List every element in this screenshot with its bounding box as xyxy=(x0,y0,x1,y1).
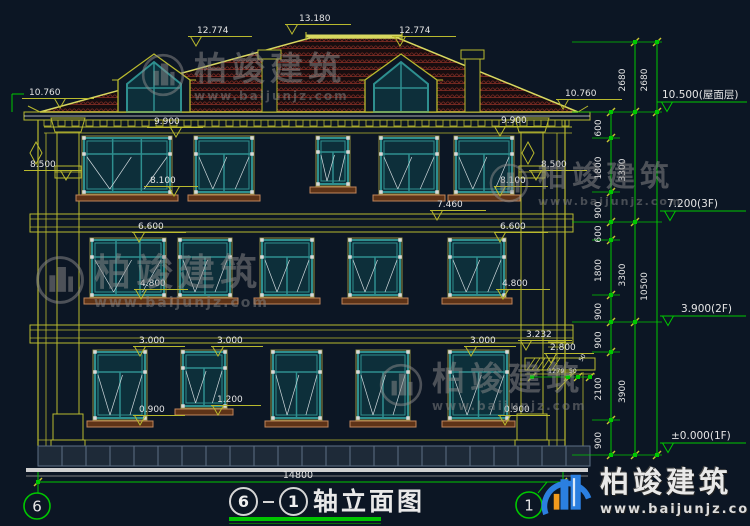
frame-dot xyxy=(311,256,314,259)
chimney-cap xyxy=(258,50,281,59)
frame-dot xyxy=(317,151,320,154)
dim-tick-dot xyxy=(610,137,613,140)
company-logo-icon xyxy=(538,468,592,526)
window-sill xyxy=(310,187,356,193)
frame-dot xyxy=(380,137,383,140)
frame-dot xyxy=(83,137,86,140)
base-stone xyxy=(518,446,542,466)
frame-dot xyxy=(91,294,94,297)
frame-dot xyxy=(272,371,275,374)
dentil xyxy=(72,120,79,126)
base-stone xyxy=(326,446,350,466)
level-annotation: 4.800 xyxy=(140,279,166,289)
frame-dot xyxy=(349,239,352,242)
base-stone xyxy=(374,446,398,466)
frame-dot xyxy=(144,371,147,374)
frame-dot xyxy=(380,153,383,156)
dentil xyxy=(282,120,289,126)
base-stone xyxy=(230,446,254,466)
base-stone xyxy=(566,446,590,466)
frame-dot xyxy=(163,294,166,297)
level-annotation: 8.100 xyxy=(500,176,526,186)
frame-dot xyxy=(83,191,86,194)
base-stone xyxy=(158,446,182,466)
eave-corner xyxy=(28,106,40,112)
dentil xyxy=(366,120,373,126)
frame-dot xyxy=(94,417,97,420)
frame-dot xyxy=(169,153,172,156)
frame-dot xyxy=(506,351,509,354)
company-name: 柏竣建筑 xyxy=(600,468,750,497)
frame-dot xyxy=(449,294,452,297)
level-annotation: 10.760 xyxy=(565,89,597,99)
level-annotation: 0.900 xyxy=(504,405,530,415)
frame-dot xyxy=(94,351,97,354)
frame-dot xyxy=(449,417,452,420)
level-annotation: 10.760 xyxy=(29,88,61,98)
level-annotation: 4.800 xyxy=(502,279,528,289)
frame-dot xyxy=(357,371,360,374)
frame-dot xyxy=(94,371,97,374)
frame-dot xyxy=(407,371,410,374)
dentil xyxy=(380,120,387,126)
dim-value: 3300 xyxy=(618,158,628,181)
level-annotation: 6.600 xyxy=(138,222,164,232)
dim-tick-dot xyxy=(610,111,613,114)
axis-bubble-number: 1 xyxy=(524,497,534,515)
base-stone xyxy=(254,446,278,466)
frame-dot xyxy=(91,256,94,259)
window-sill xyxy=(76,195,178,201)
frame-dot xyxy=(436,153,439,156)
dentil xyxy=(408,120,415,126)
frame-dot xyxy=(449,351,452,354)
dim-value: 900 xyxy=(594,303,604,320)
dentil xyxy=(296,120,303,126)
frame-dot xyxy=(261,294,264,297)
title-axis-bubble-start: 6 xyxy=(229,487,258,516)
frame-dot xyxy=(144,351,147,354)
frame-dot xyxy=(506,371,509,374)
frame-dot xyxy=(349,294,352,297)
elevation-svg: 1279505013.18012.77412.77410.76010.7609.… xyxy=(0,0,750,526)
dim-value: 2100 xyxy=(594,377,604,400)
dentil xyxy=(548,120,555,126)
dim-value: 3300 xyxy=(618,263,628,286)
level-annotation: 9.900 xyxy=(154,117,180,127)
frame-dot xyxy=(399,239,402,242)
frame-dot xyxy=(380,191,383,194)
floor-level-label: 10.500(屋面层) xyxy=(662,89,738,101)
frame-dot xyxy=(399,256,402,259)
dentil xyxy=(240,120,247,126)
cad-elevation-screenshot: 1279505013.18012.77412.77410.76010.7609.… xyxy=(0,0,750,526)
frame-dot xyxy=(179,294,182,297)
pilaster-base xyxy=(53,414,83,440)
frame-dot xyxy=(229,239,232,242)
base-stone xyxy=(86,446,110,466)
level-annotation: 6.600 xyxy=(500,222,526,232)
dim-tick-dot xyxy=(634,454,637,457)
level-annotation: 3.000 xyxy=(470,336,496,346)
small-dim-text: 50 xyxy=(569,368,577,375)
dim-tick-dot xyxy=(610,294,613,297)
dentil xyxy=(198,120,205,126)
dim-tick-dot xyxy=(610,321,613,324)
frame-dot xyxy=(407,417,410,420)
dim-tick-dot xyxy=(577,376,580,379)
dentil xyxy=(226,120,233,126)
company-logo-building-icon xyxy=(538,468,592,522)
frame-dot xyxy=(251,153,254,156)
frame-dot xyxy=(261,256,264,259)
level-annotation: 3.000 xyxy=(139,336,165,346)
frame-dot xyxy=(195,191,198,194)
company-website: www.baijunjz.com xyxy=(600,502,750,517)
eave-corner xyxy=(578,106,588,112)
title-axis-bubble-end: 1 xyxy=(279,487,308,516)
floor-level-label: 7.200(3F) xyxy=(667,198,718,210)
dentil xyxy=(184,120,191,126)
dim-tick-dot xyxy=(656,41,659,44)
company-logo: 柏竣建筑 www.baijunjz.com xyxy=(538,468,750,526)
dentil xyxy=(142,120,149,126)
frame-dot xyxy=(229,294,232,297)
frame-dot xyxy=(357,351,360,354)
window-sill xyxy=(87,421,153,427)
dim-value: 2680 xyxy=(640,68,650,91)
dim-tick-dot xyxy=(531,376,534,379)
base-stone xyxy=(446,446,470,466)
frame-dot xyxy=(399,294,402,297)
dim-value: 2680 xyxy=(618,68,628,91)
frame-dot xyxy=(349,256,352,259)
dentil xyxy=(310,120,317,126)
dim-value: 10500 xyxy=(640,272,650,301)
title-text: 轴立面图 xyxy=(313,489,425,514)
frame-dot xyxy=(224,367,227,370)
dim-tick-dot xyxy=(610,221,613,224)
dentil xyxy=(268,120,275,126)
dentil xyxy=(492,120,499,126)
dim-tick-dot xyxy=(634,221,637,224)
dentil xyxy=(58,120,65,126)
base-stone xyxy=(278,446,302,466)
dentil xyxy=(114,120,121,126)
base-stone xyxy=(206,446,230,466)
level-annotation: 3.000 xyxy=(217,336,243,346)
window-sill xyxy=(350,421,416,427)
dentil xyxy=(436,120,443,126)
axis-bubble-number: 6 xyxy=(32,498,42,516)
title-underline xyxy=(229,517,381,521)
window-sill xyxy=(442,298,512,304)
base-stone xyxy=(542,446,566,466)
dim-value: 1800 xyxy=(594,259,604,282)
canopy-hatch xyxy=(537,358,545,370)
base-stone xyxy=(182,446,206,466)
frame-dot xyxy=(251,191,254,194)
level-annotation: 9.900 xyxy=(501,116,527,126)
base-stone xyxy=(62,446,86,466)
frame-dot xyxy=(511,191,514,194)
pilaster-plinth xyxy=(51,440,85,446)
level-annotation: 13.180 xyxy=(299,14,331,24)
drawing-title: 6 1 轴立面图 xyxy=(229,487,425,516)
canopy-hatch xyxy=(532,358,540,370)
frame-dot xyxy=(319,351,322,354)
frame-dot xyxy=(311,239,314,242)
chimney-cap xyxy=(461,50,484,59)
level-triangle-icon xyxy=(663,316,674,326)
dentil xyxy=(534,120,541,126)
frame-dot xyxy=(272,417,275,420)
dim-value: 900 xyxy=(594,201,604,218)
floor-level-label: 3.900(2F) xyxy=(681,303,732,315)
frame-dot xyxy=(311,294,314,297)
floor-belt xyxy=(30,214,573,232)
frame-dot xyxy=(229,256,232,259)
dentil xyxy=(464,120,471,126)
title-underline-thin xyxy=(229,523,381,524)
base-stone xyxy=(398,446,422,466)
dentil xyxy=(86,120,93,126)
dentil xyxy=(394,120,401,126)
dim-tick-dot xyxy=(567,376,570,379)
level-triangle-icon xyxy=(663,443,674,453)
dim-tick-dot xyxy=(634,111,637,114)
window-sill xyxy=(342,298,408,304)
level-triangle-icon xyxy=(665,211,676,221)
finial-diamond-icon xyxy=(522,142,534,164)
dentil xyxy=(44,120,51,126)
dentil xyxy=(352,120,359,126)
frame-dot xyxy=(83,153,86,156)
window-sill xyxy=(175,409,233,415)
base-stone xyxy=(494,446,518,466)
dim-value: 600 xyxy=(594,225,604,242)
frame-dot xyxy=(163,256,166,259)
frame-dot xyxy=(436,191,439,194)
level-triangle-icon xyxy=(521,341,532,351)
frame-dot xyxy=(503,256,506,259)
frame-dot xyxy=(449,256,452,259)
frame-dot xyxy=(169,137,172,140)
frame-dot xyxy=(182,351,185,354)
small-dim-text: 50 xyxy=(578,353,588,363)
frame-dot xyxy=(357,417,360,420)
chimney xyxy=(262,58,277,112)
frame-dot xyxy=(449,239,452,242)
base-stone xyxy=(470,446,494,466)
frame-dot xyxy=(261,239,264,242)
frame-dot xyxy=(272,351,275,354)
dim-value: 600 xyxy=(594,119,604,136)
dentil xyxy=(324,120,331,126)
dentil xyxy=(450,120,457,126)
frame-dot xyxy=(251,137,254,140)
small-dim-text: 1279 xyxy=(548,367,565,375)
frame-dot xyxy=(436,137,439,140)
frame-dot xyxy=(195,137,198,140)
level-annotation: 12.774 xyxy=(197,26,229,36)
dentil xyxy=(254,120,261,126)
window-sill xyxy=(172,298,238,304)
level-annotation: 0.900 xyxy=(139,405,165,415)
frame-dot xyxy=(317,137,320,140)
dim-tick-dot xyxy=(589,376,592,379)
dim-tick-dot xyxy=(610,191,613,194)
frame-dot xyxy=(511,153,514,156)
level-triangle-icon xyxy=(432,211,443,221)
frame-dot xyxy=(319,417,322,420)
dim-tick-dot xyxy=(610,419,613,422)
dim-tick-dot xyxy=(610,454,613,457)
dentil xyxy=(100,120,107,126)
frame-dot xyxy=(195,153,198,156)
window-sill xyxy=(188,195,260,201)
level-annotation: 1.200 xyxy=(217,395,243,405)
frame-dot xyxy=(91,239,94,242)
frame-dot xyxy=(182,405,185,408)
base-stone xyxy=(302,446,326,466)
frame-dot xyxy=(182,367,185,370)
dentil xyxy=(338,120,345,126)
dim-value: 900 xyxy=(594,331,604,348)
dentil xyxy=(212,120,219,126)
level-triangle-icon xyxy=(662,102,673,112)
frame-dot xyxy=(319,371,322,374)
frame-dot xyxy=(179,239,182,242)
base-stone xyxy=(110,446,134,466)
frame-dot xyxy=(163,239,166,242)
dim-tick-dot xyxy=(610,239,613,242)
frame-dot xyxy=(179,256,182,259)
window-sill xyxy=(254,298,320,304)
dim-tick-dot xyxy=(634,41,637,44)
frame-dot xyxy=(407,351,410,354)
window-sill xyxy=(265,421,328,427)
frame-dot xyxy=(317,183,320,186)
dim-tick-dot xyxy=(610,351,613,354)
dentil xyxy=(422,120,429,126)
window-sill xyxy=(373,195,445,201)
dim-tick-dot xyxy=(656,454,659,457)
frame-dot xyxy=(455,153,458,156)
title-dash xyxy=(263,501,274,503)
level-triangle-icon xyxy=(287,25,298,35)
frame-dot xyxy=(449,371,452,374)
dim-value: 3900 xyxy=(618,380,628,403)
level-annotation: 3.232 xyxy=(526,330,552,340)
pilaster-plinth xyxy=(515,440,549,446)
frame-dot xyxy=(347,137,350,140)
window-sill xyxy=(84,298,172,304)
frame-dot xyxy=(455,137,458,140)
level-annotation: 2.800 xyxy=(550,343,576,353)
frame-dot xyxy=(347,151,350,154)
level-annotation: 12.774 xyxy=(399,26,431,36)
level-triangle-icon xyxy=(495,127,506,137)
base-stone xyxy=(422,446,446,466)
overall-dim-text: 14800 xyxy=(283,470,313,481)
dentil xyxy=(478,120,485,126)
chimney xyxy=(465,58,480,112)
level-annotation: 8.100 xyxy=(150,176,176,186)
canopy-hatch xyxy=(527,358,535,370)
base-stone xyxy=(134,446,158,466)
dim-tick-dot xyxy=(656,111,659,114)
pilaster-base xyxy=(517,414,547,440)
floor-level-label: ±0.000(1F) xyxy=(671,430,731,442)
base-stone xyxy=(350,446,374,466)
dim-value: 900 xyxy=(594,432,604,449)
dim-tick-dot xyxy=(37,481,40,484)
level-annotation: 8.500 xyxy=(541,160,567,170)
dim-tick-dot xyxy=(634,321,637,324)
dentil xyxy=(128,120,135,126)
dim-value: 1800 xyxy=(594,156,604,179)
frame-dot xyxy=(347,183,350,186)
frame-dot xyxy=(455,191,458,194)
level-annotation: 7.460 xyxy=(437,200,463,210)
level-annotation: 8.500 xyxy=(30,160,56,170)
base-stone xyxy=(38,446,62,466)
frame-dot xyxy=(511,137,514,140)
level-triangle-icon xyxy=(191,37,202,47)
frame-dot xyxy=(224,351,227,354)
frame-dot xyxy=(503,239,506,242)
